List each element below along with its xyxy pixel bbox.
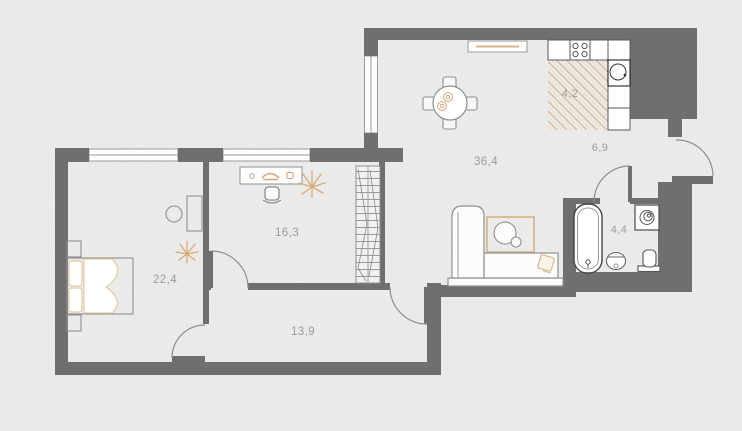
window [223, 149, 310, 161]
wall [178, 148, 223, 162]
room-area-label-office: 16,3 [275, 227, 299, 239]
window [365, 56, 378, 133]
wall [248, 283, 390, 290]
wall [364, 28, 630, 40]
dining-table-icon [433, 86, 467, 120]
kitchen-sink-icon [608, 60, 630, 86]
wall [630, 198, 658, 204]
wardrobe-icon [356, 166, 380, 283]
room-area-label-entry-hall: 6,9 [592, 142, 609, 154]
wall [630, 28, 697, 119]
bathroom-sink-icon [607, 253, 626, 270]
room-area-label-kitchen-zone: 4,2 [562, 88, 579, 100]
sideboard-icon [468, 41, 527, 52]
wall [427, 285, 576, 297]
desk-icon [240, 167, 302, 184]
bathtub-icon [574, 204, 602, 273]
washing-machine-icon [635, 205, 659, 230]
room-area-label-living-room: 36,4 [474, 156, 498, 168]
floor-plan-canvas: 22,4 16,3 13,9 36,4 6,9 4,2 4,4 [0, 0, 742, 431]
floor-plan-drawing [0, 0, 742, 431]
wall [563, 272, 692, 292]
room-area-label-bedroom: 22,4 [153, 274, 177, 286]
window [89, 149, 178, 161]
wall [576, 198, 600, 204]
wall [55, 362, 441, 375]
wall [310, 148, 403, 162]
room-area-label-hallway: 13,9 [291, 326, 315, 338]
room-area-label-bathroom: 4,4 [611, 224, 628, 236]
wall [364, 133, 378, 162]
wall [203, 157, 209, 324]
wall [427, 283, 441, 375]
wall [55, 148, 89, 162]
wall [55, 148, 68, 375]
wall [668, 119, 682, 137]
